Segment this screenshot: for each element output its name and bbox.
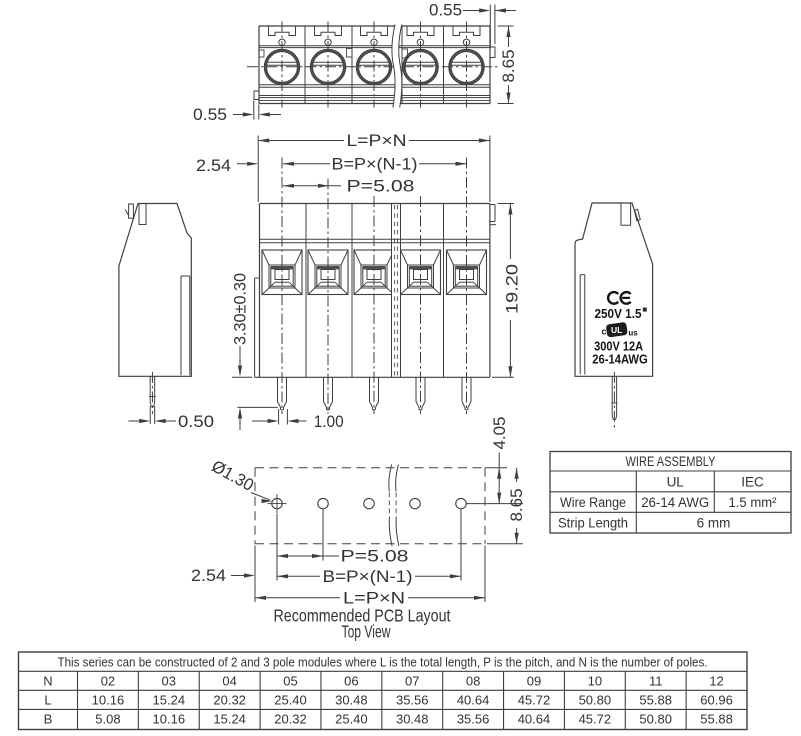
- svg-text:3.30±0.30: 3.30±0.30: [230, 273, 249, 345]
- svg-text:2.54: 2.54: [196, 156, 231, 175]
- svg-text:09: 09: [527, 674, 541, 689]
- svg-text:05: 05: [283, 674, 297, 689]
- svg-text:us: us: [628, 329, 638, 338]
- svg-text:26-14 AWG: 26-14 AWG: [641, 495, 709, 510]
- svg-text:10.16: 10.16: [92, 693, 125, 708]
- svg-text:P=5.08: P=5.08: [341, 547, 409, 566]
- svg-text:8.65: 8.65: [507, 489, 526, 522]
- svg-text:4.05: 4.05: [490, 417, 509, 450]
- svg-text:B=P×(N-1): B=P×(N-1): [323, 567, 413, 586]
- svg-text:30.48: 30.48: [396, 712, 429, 727]
- svg-text:L: L: [44, 693, 51, 708]
- svg-text:B: B: [44, 712, 53, 727]
- svg-text:55.88: 55.88: [700, 712, 733, 727]
- svg-text:08: 08: [466, 674, 480, 689]
- svg-text:8.65: 8.65: [499, 50, 518, 83]
- svg-text:02: 02: [101, 674, 115, 689]
- svg-text:45.72: 45.72: [579, 712, 612, 727]
- svg-text:B=P×(N-1): B=P×(N-1): [332, 154, 418, 173]
- svg-text:35.56: 35.56: [396, 693, 429, 708]
- svg-text:UL: UL: [611, 325, 622, 335]
- svg-text:30.48: 30.48: [335, 693, 368, 708]
- svg-text:P=5.08: P=5.08: [347, 176, 415, 195]
- svg-text:250V 1.5: 250V 1.5: [595, 307, 642, 321]
- svg-text:N: N: [43, 674, 52, 689]
- svg-text:5.08: 5.08: [95, 712, 120, 727]
- svg-text:IEC: IEC: [741, 475, 764, 490]
- svg-text:11: 11: [649, 674, 663, 689]
- svg-text:12: 12: [709, 674, 723, 689]
- svg-text:50.80: 50.80: [639, 712, 672, 727]
- svg-text:25.40: 25.40: [335, 712, 368, 727]
- svg-text:07: 07: [405, 674, 419, 689]
- svg-text:Wire Range: Wire Range: [560, 495, 626, 510]
- svg-text:40.64: 40.64: [457, 693, 490, 708]
- svg-text:15.24: 15.24: [213, 712, 246, 727]
- svg-text:0.50: 0.50: [178, 413, 214, 431]
- svg-text:20.32: 20.32: [213, 693, 246, 708]
- svg-text:6 mm: 6 mm: [697, 516, 731, 531]
- svg-text:10: 10: [588, 674, 602, 689]
- svg-text:45.72: 45.72: [518, 693, 551, 708]
- svg-text:03: 03: [162, 674, 176, 689]
- svg-text:55.88: 55.88: [639, 693, 672, 708]
- svg-text:40.64: 40.64: [518, 712, 551, 727]
- svg-text:This series can be constructed: This series can be constructed of 2 and …: [58, 655, 708, 670]
- svg-text:Strip Length: Strip Length: [558, 516, 628, 531]
- svg-text:1.5 mm²: 1.5 mm²: [729, 495, 777, 510]
- svg-text:19.20: 19.20: [503, 264, 522, 314]
- svg-text:0.55: 0.55: [429, 1, 462, 20]
- svg-text:10.16: 10.16: [153, 712, 186, 727]
- svg-text:50.80: 50.80: [579, 693, 612, 708]
- svg-text:1.00: 1.00: [314, 413, 344, 431]
- svg-text:L=P×N: L=P×N: [347, 131, 407, 150]
- svg-text:c: c: [601, 327, 606, 337]
- svg-text:04: 04: [222, 674, 236, 689]
- svg-text:UL: UL: [667, 475, 685, 490]
- svg-text:2.54: 2.54: [191, 566, 226, 585]
- svg-text:300V 12A: 300V 12A: [594, 340, 643, 354]
- svg-text:35.56: 35.56: [457, 712, 490, 727]
- svg-text:26-14AWG: 26-14AWG: [592, 352, 648, 366]
- svg-text:60.96: 60.96: [700, 693, 733, 708]
- svg-text:WIRE ASSEMBLY: WIRE ASSEMBLY: [626, 454, 716, 469]
- svg-text:20.32: 20.32: [274, 712, 307, 727]
- svg-text:15.24: 15.24: [153, 693, 186, 708]
- svg-text:25.40: 25.40: [274, 693, 307, 708]
- svg-text:06: 06: [344, 674, 358, 689]
- svg-text:Top View: Top View: [342, 621, 391, 641]
- svg-text:0.55: 0.55: [193, 105, 227, 124]
